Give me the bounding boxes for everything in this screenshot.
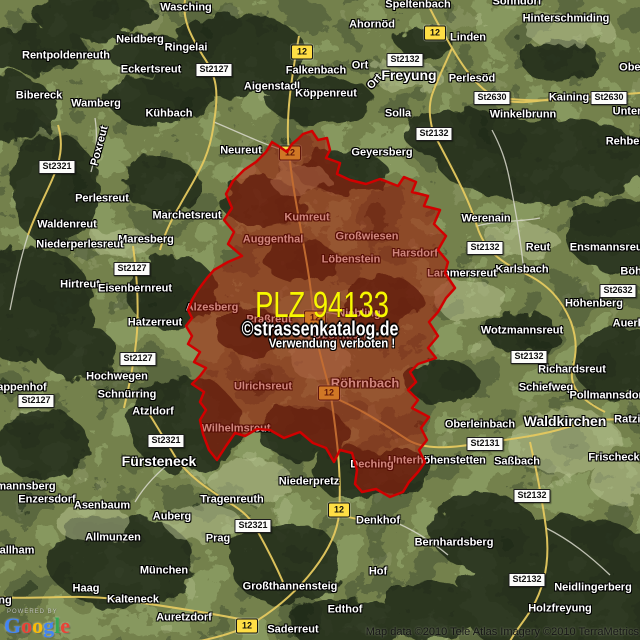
map-viewport[interactable]: WaschingSonndorfSpeltenbachHinterschmidi… [0,0,640,640]
google-logo-letter: e [60,613,70,638]
google-logo-letter: o [32,613,43,638]
google-logo-letter: o [21,613,32,638]
map-attribution: Map data ©2010 Tele Atlas Imagery ©2010 … [366,626,639,638]
google-logo[interactable]: Google [4,613,70,639]
google-logo-letter: G [4,613,21,638]
google-logo-letter: g [43,613,54,638]
